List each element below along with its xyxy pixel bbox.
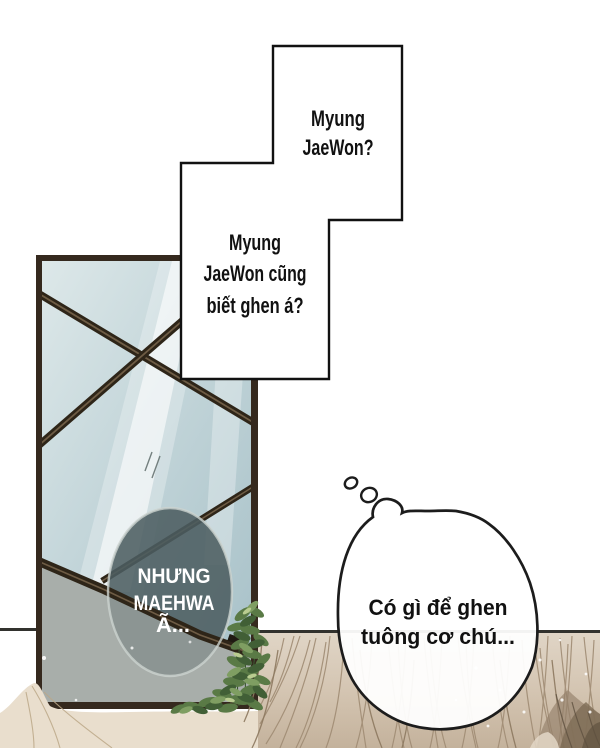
svg-text:Ã...: Ã...: [156, 614, 190, 637]
svg-text:biết ghen á?: biết ghen á?: [207, 293, 304, 318]
svg-text:JaeWon?: JaeWon?: [303, 135, 374, 160]
svg-text:Myung: Myung: [229, 230, 281, 255]
svg-text:Myung: Myung: [311, 106, 365, 131]
svg-text:JaeWon cũng: JaeWon cũng: [204, 261, 307, 286]
svg-text:NHƯNG: NHƯNG: [138, 565, 211, 588]
svg-text:tuông cơ chú...: tuông cơ chú...: [361, 624, 515, 649]
svg-text:Có gì để ghen: Có gì để ghen: [369, 595, 508, 620]
svg-text:MAEHWA: MAEHWA: [134, 592, 215, 615]
